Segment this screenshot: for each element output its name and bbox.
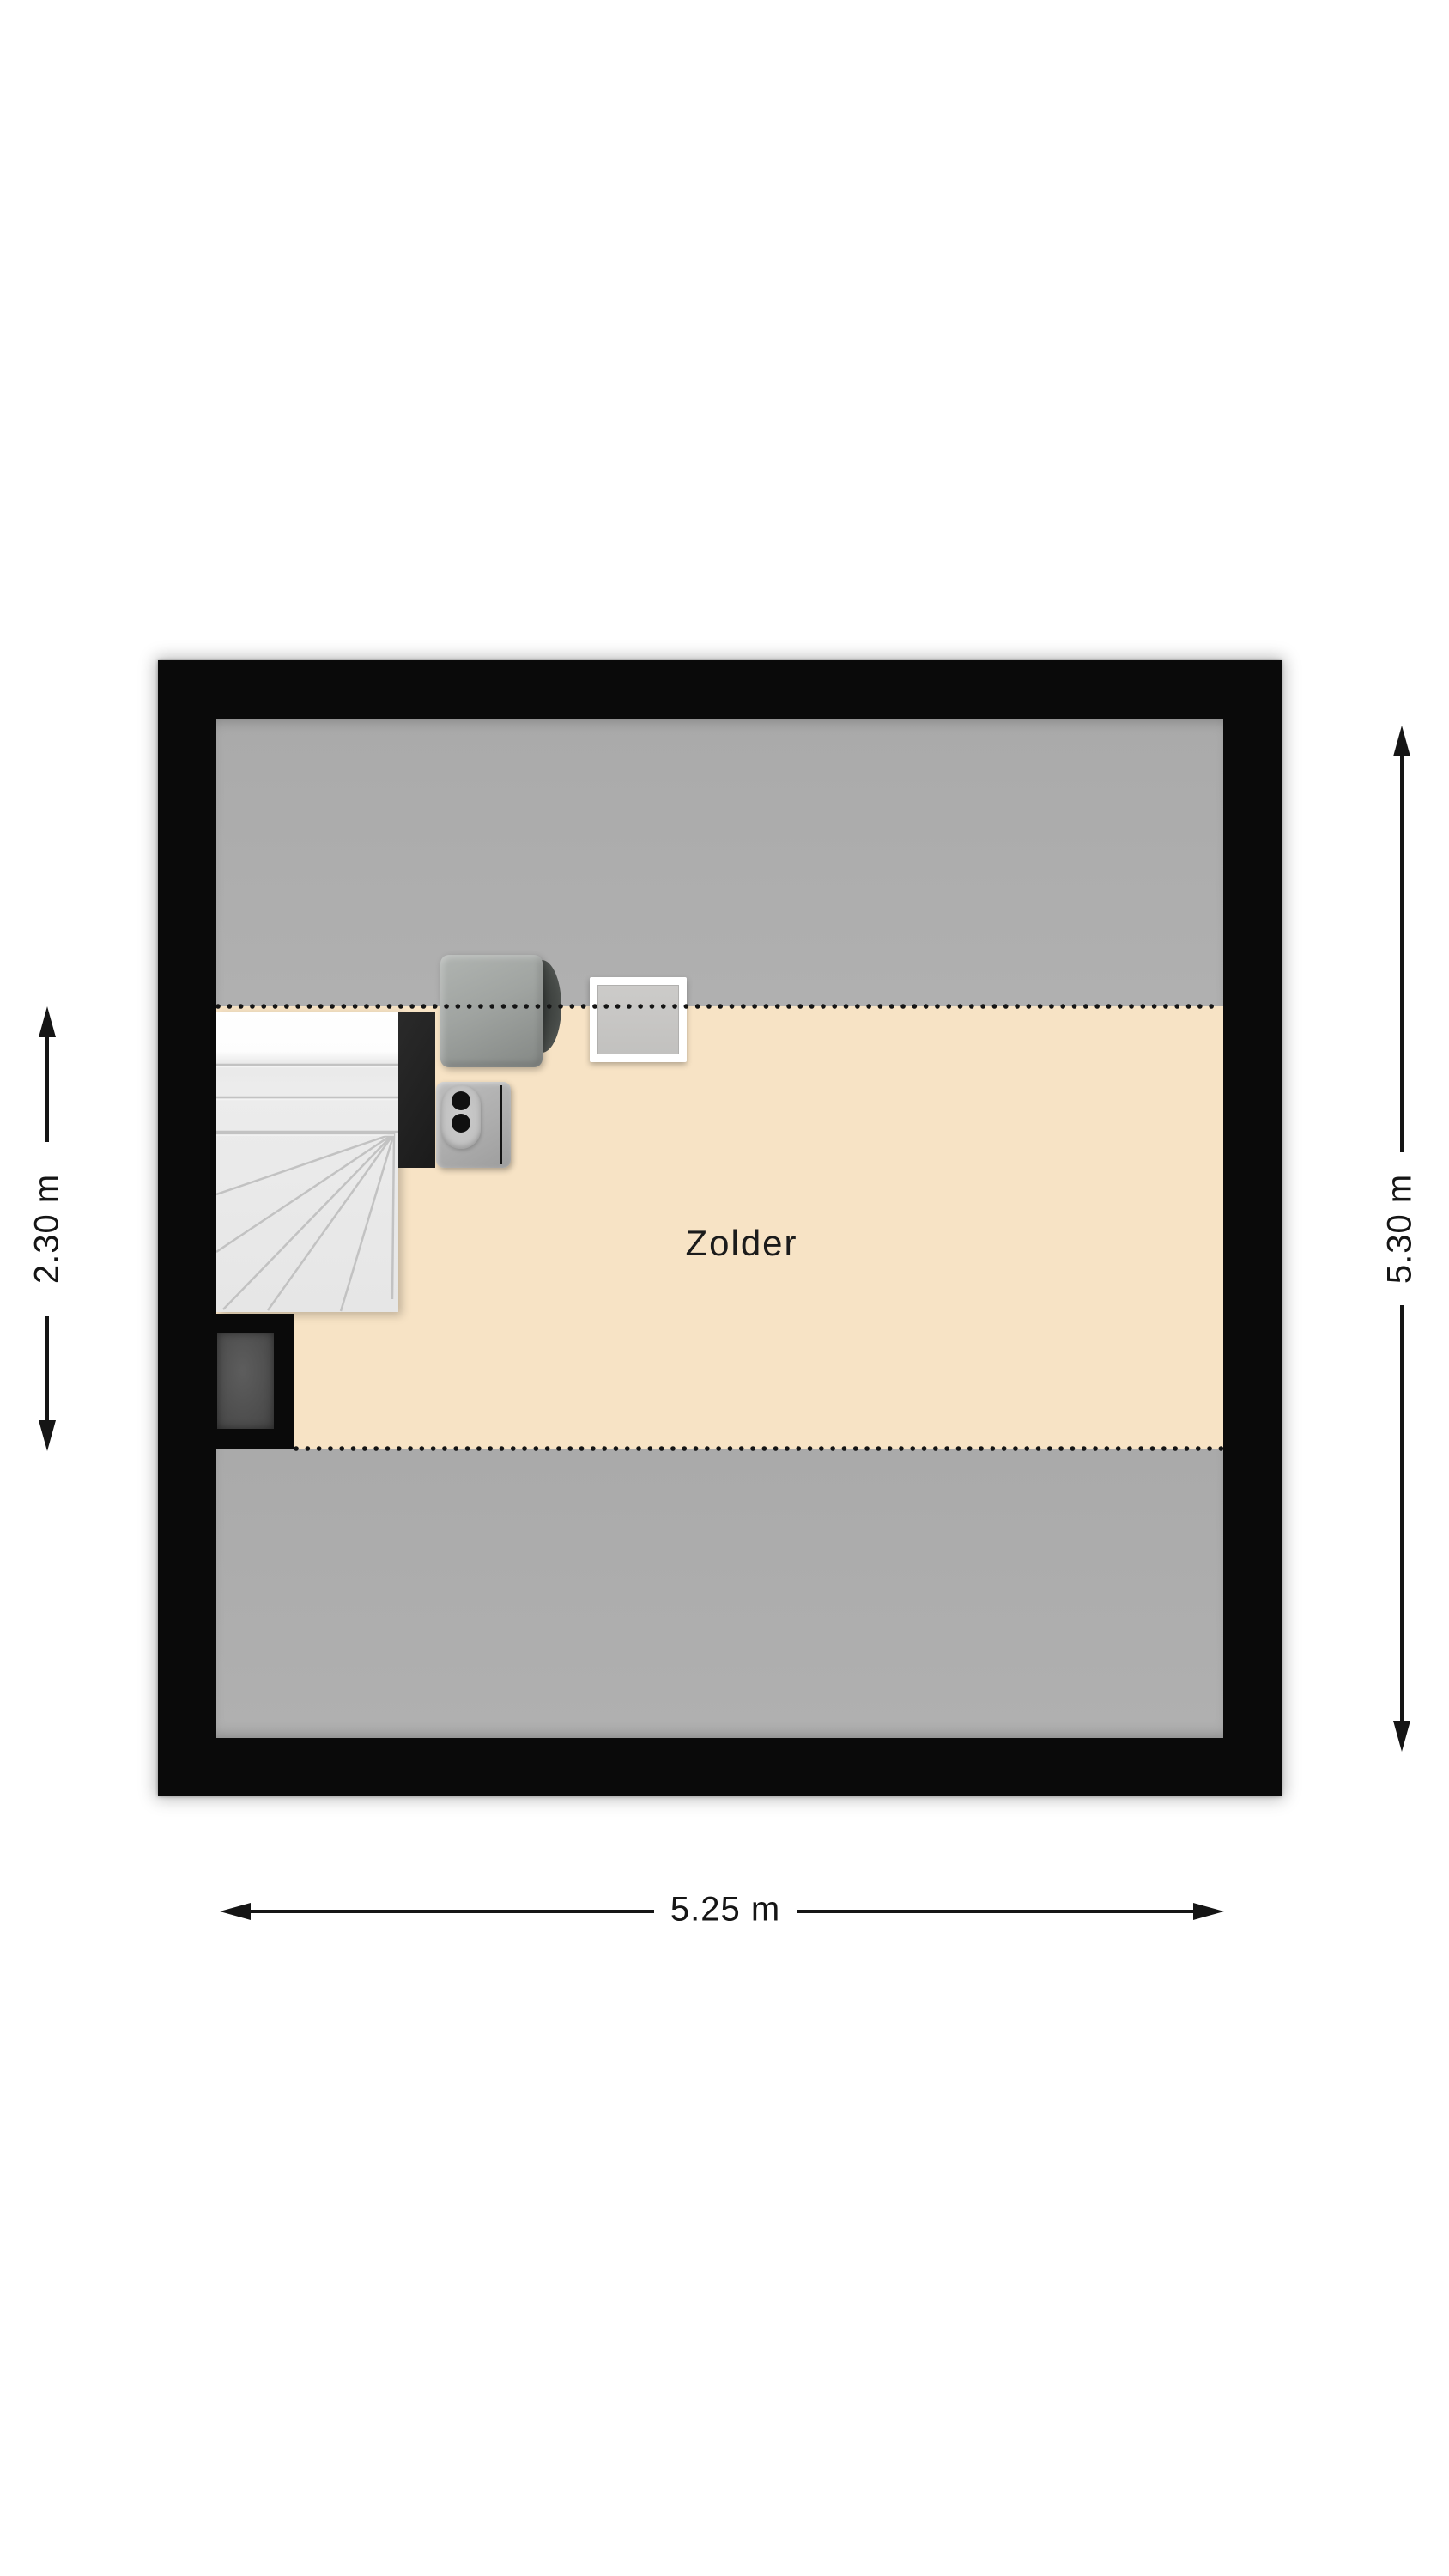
dimension-label-bottom: 5.25 m [670,1891,780,1929]
attic-room: Zolder [216,719,1223,1738]
staircase [216,1012,398,1312]
dimension-label-right: 5.30 m [1381,1174,1420,1284]
floorplan-canvas: Zolder 2.30 m 5.30 m 5.25 m [0,0,1449,2576]
boiler-edge-line [500,1085,502,1164]
boiler-pipe-bottom [452,1114,470,1133]
roof-window [590,977,687,1062]
chimney-flue [217,1333,274,1429]
exterior-walls: Zolder [158,660,1282,1796]
chimney-shaft [214,1314,294,1449]
low-headroom-zone-bottom [216,1449,1223,1738]
boiler-unit [436,1082,511,1168]
room-label: Zolder [685,1223,797,1264]
boiler-pipe-top [452,1091,470,1110]
low-headroom-zone-top [216,719,1223,1006]
stairwell-wall [398,1012,435,1168]
storage-cabinet [440,955,543,1067]
staircase-treads-graphic [216,1012,398,1312]
roof-window-glass [597,985,679,1054]
dimension-label-left: 2.30 m [28,1174,67,1284]
